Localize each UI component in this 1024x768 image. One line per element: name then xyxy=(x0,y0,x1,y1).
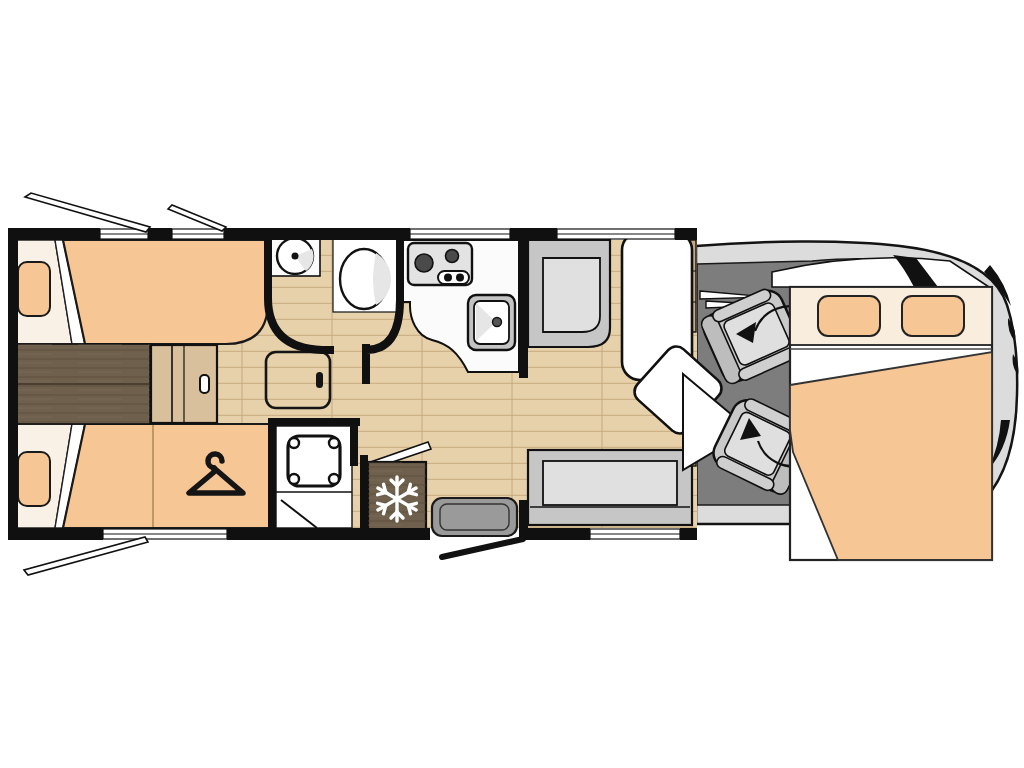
window-bedroom-2 xyxy=(172,229,224,239)
fridge xyxy=(360,455,426,537)
bed-bottom-mattress xyxy=(63,424,270,528)
table-handle xyxy=(316,372,323,388)
wall-top xyxy=(675,228,697,240)
window-lounge xyxy=(557,229,675,239)
knob-icon xyxy=(444,274,452,282)
shower-corner xyxy=(289,474,299,484)
floorplan-canvas xyxy=(0,0,1024,768)
fridge-jamb xyxy=(360,455,368,537)
entry-door xyxy=(432,498,517,536)
window-bedroom-3 xyxy=(103,529,227,539)
bench-top xyxy=(528,240,610,347)
knob-icon xyxy=(456,274,464,282)
bed-top xyxy=(16,240,268,344)
window-bench xyxy=(590,529,680,539)
entry-door-open xyxy=(442,539,523,557)
wall-bottom xyxy=(227,528,430,540)
sliding-door xyxy=(151,345,217,423)
open-flap-icon xyxy=(24,537,148,575)
burner-icon xyxy=(446,250,459,263)
wall-left xyxy=(8,228,18,540)
bed-top-mattress xyxy=(63,240,268,344)
habitation xyxy=(8,228,726,540)
shower-wall xyxy=(268,418,360,426)
wall-bottom xyxy=(680,528,697,540)
hob-knobs xyxy=(438,271,469,284)
shower-wall xyxy=(350,418,358,466)
open-flap-icon xyxy=(25,193,150,232)
kitchen-sink xyxy=(468,295,515,350)
bench-top-cushion xyxy=(543,258,600,332)
drop-down-bed xyxy=(790,287,992,560)
bed-pillow xyxy=(818,296,880,336)
wall-top xyxy=(224,228,410,240)
wall-top xyxy=(510,228,557,240)
shower-corner xyxy=(329,474,339,484)
window-kitchen xyxy=(410,229,510,239)
bed-top-pillow xyxy=(18,262,50,316)
hob xyxy=(408,243,472,285)
bench-bottom-cushion xyxy=(543,461,677,505)
wall-bottom xyxy=(522,528,590,540)
faucet-icon xyxy=(493,318,502,327)
door-handle xyxy=(200,375,209,393)
bed-bottom-pillow xyxy=(18,452,50,506)
galley-divider-wall xyxy=(519,238,528,378)
open-flap-icon xyxy=(168,205,226,231)
bedside-chest xyxy=(16,344,150,424)
wall-top xyxy=(8,228,100,240)
wall-bottom xyxy=(8,528,103,540)
shower-corner xyxy=(289,438,299,448)
bench-bottom xyxy=(528,450,692,525)
bed-bottom xyxy=(16,424,270,528)
basin-drain xyxy=(292,253,299,260)
wall-top xyxy=(148,228,172,240)
burner-icon xyxy=(415,254,433,272)
bed-pillow xyxy=(902,296,964,336)
shower-wall xyxy=(268,418,276,530)
shower-corner xyxy=(329,438,339,448)
